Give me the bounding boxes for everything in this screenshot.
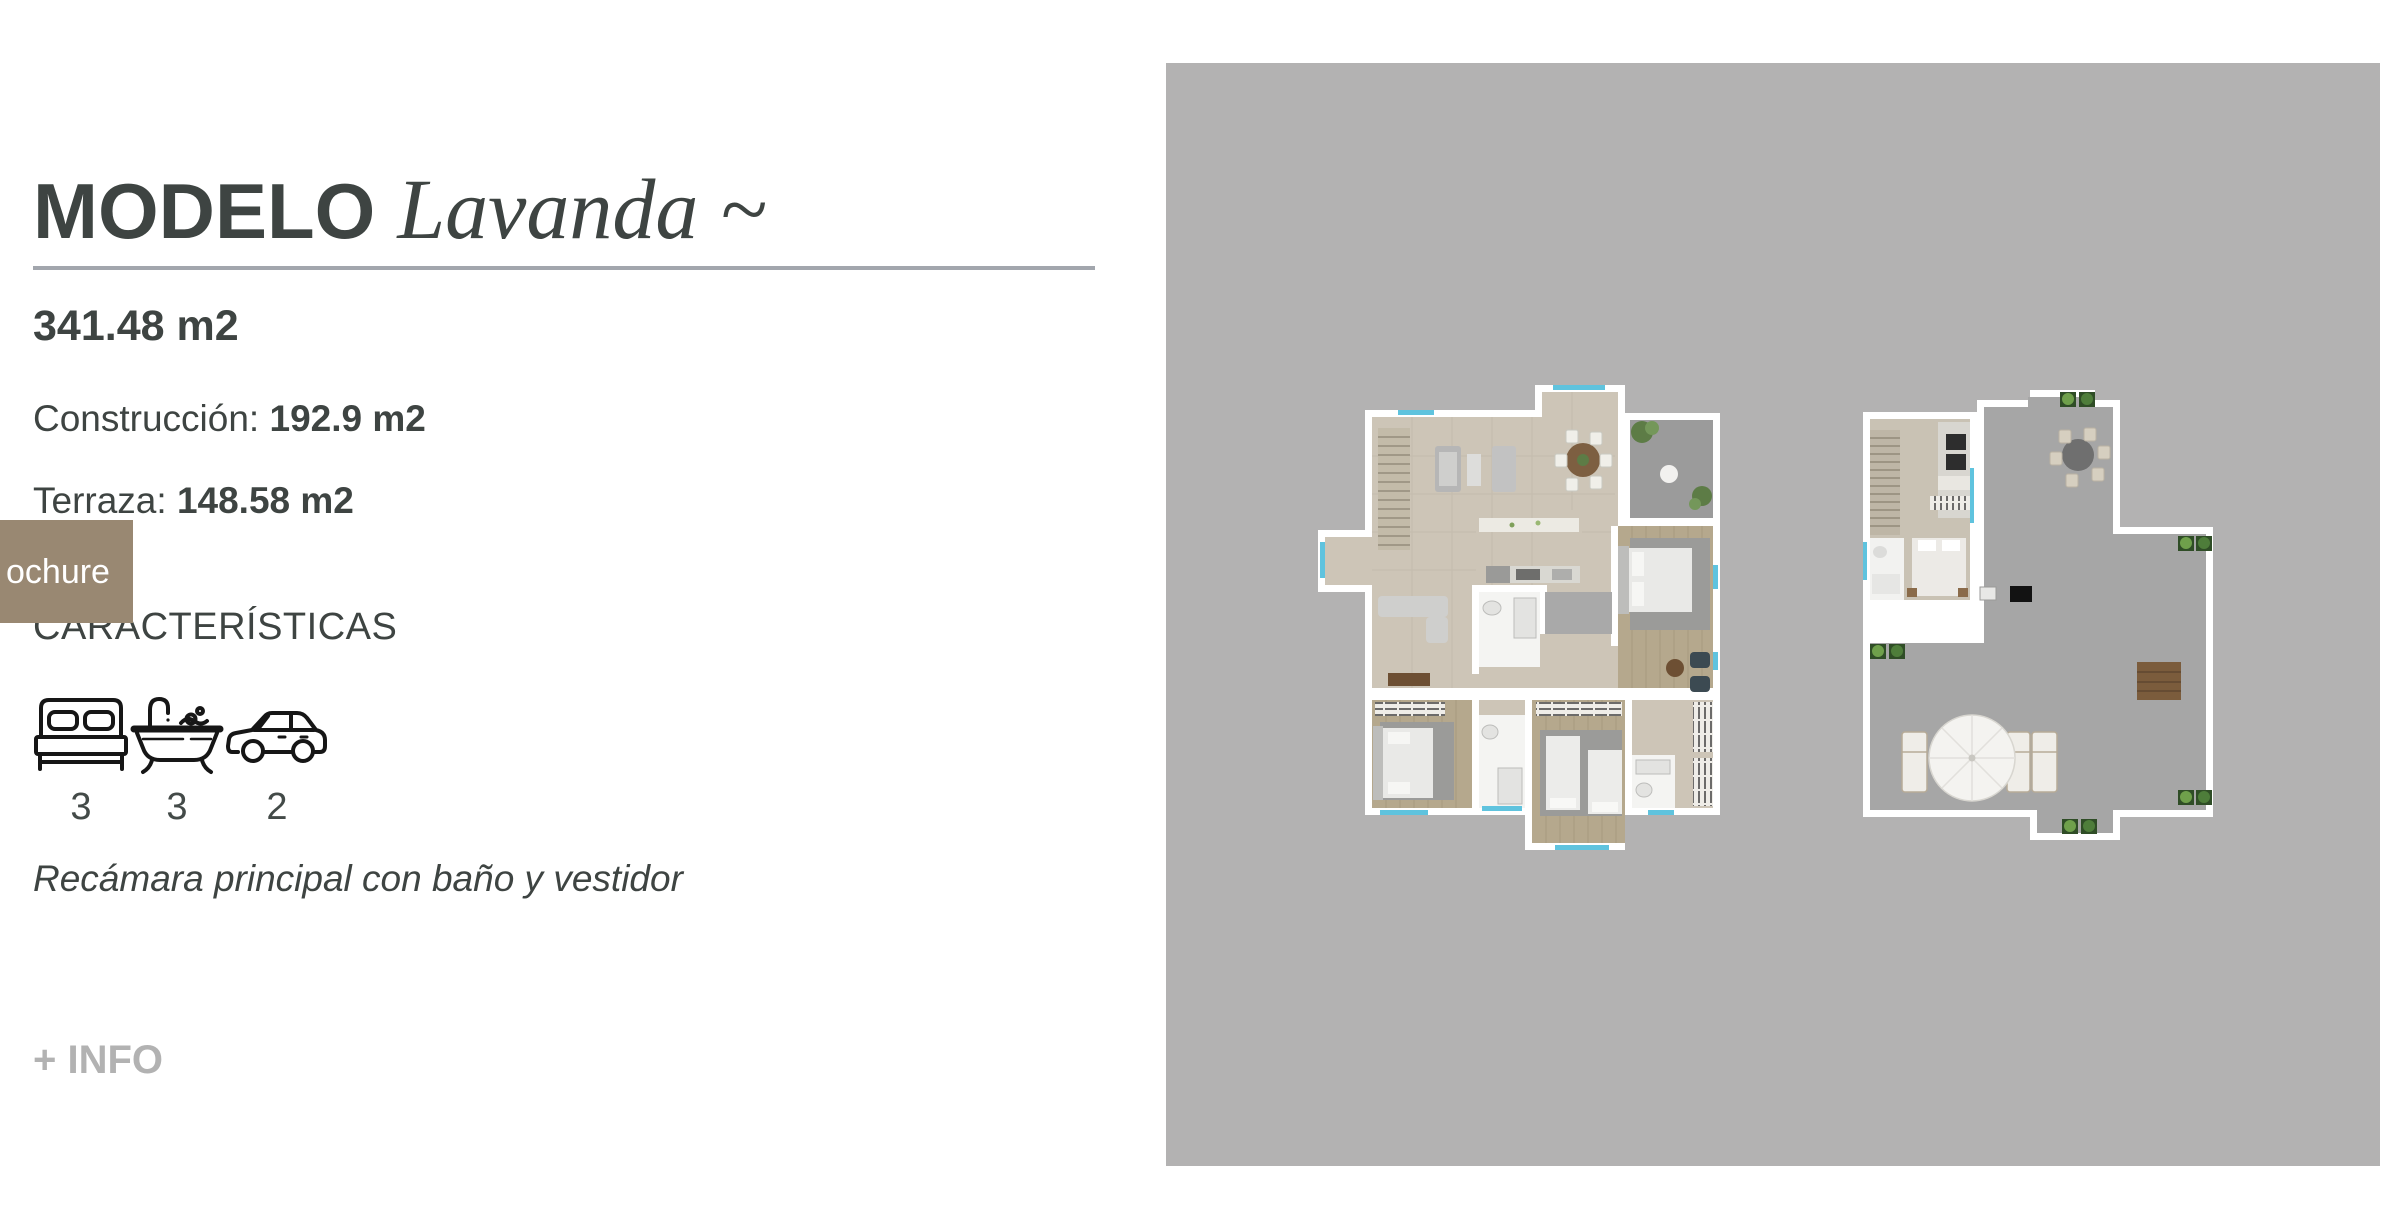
- construction-value: 192.9 m2: [270, 398, 426, 439]
- terrace-value: 148.58 m2: [177, 480, 354, 521]
- floor-plans-panel: [1166, 63, 2380, 1166]
- model-page: MODELOLavanda ~ 341.48 m2 Construcción: …: [0, 0, 2406, 1214]
- bathrooms-count: 3: [129, 786, 225, 829]
- bedrooms-count: 3: [33, 786, 129, 829]
- roof-terrace-plan: [1860, 390, 2260, 860]
- brochure-button[interactable]: ochure: [0, 520, 133, 623]
- features-icons-row: [33, 692, 329, 777]
- model-name: Lavanda ~: [397, 161, 766, 257]
- model-label: MODELO: [33, 167, 375, 255]
- construction-spec: Construcción: 192.9 m2: [33, 398, 426, 440]
- bed-icon: [33, 692, 129, 777]
- feature-note: Recámara principal con baño y vestidor: [33, 858, 683, 900]
- features-counts-row: 3 3 2: [33, 786, 329, 829]
- construction-label: Construcción:: [33, 398, 259, 439]
- title-divider: [33, 266, 1095, 270]
- more-info-link[interactable]: + INFO: [33, 1038, 163, 1083]
- terrace-spec: Terraza: 148.58 m2: [33, 480, 354, 522]
- page-title: MODELOLavanda ~: [33, 159, 766, 259]
- car-icon: [225, 692, 329, 777]
- parking-count: 2: [225, 786, 329, 829]
- total-area: 341.48 m2: [33, 302, 239, 351]
- bathtub-icon: [129, 692, 225, 777]
- ground-floor-plan: [1300, 370, 1770, 870]
- terrace-label: Terraza:: [33, 480, 167, 521]
